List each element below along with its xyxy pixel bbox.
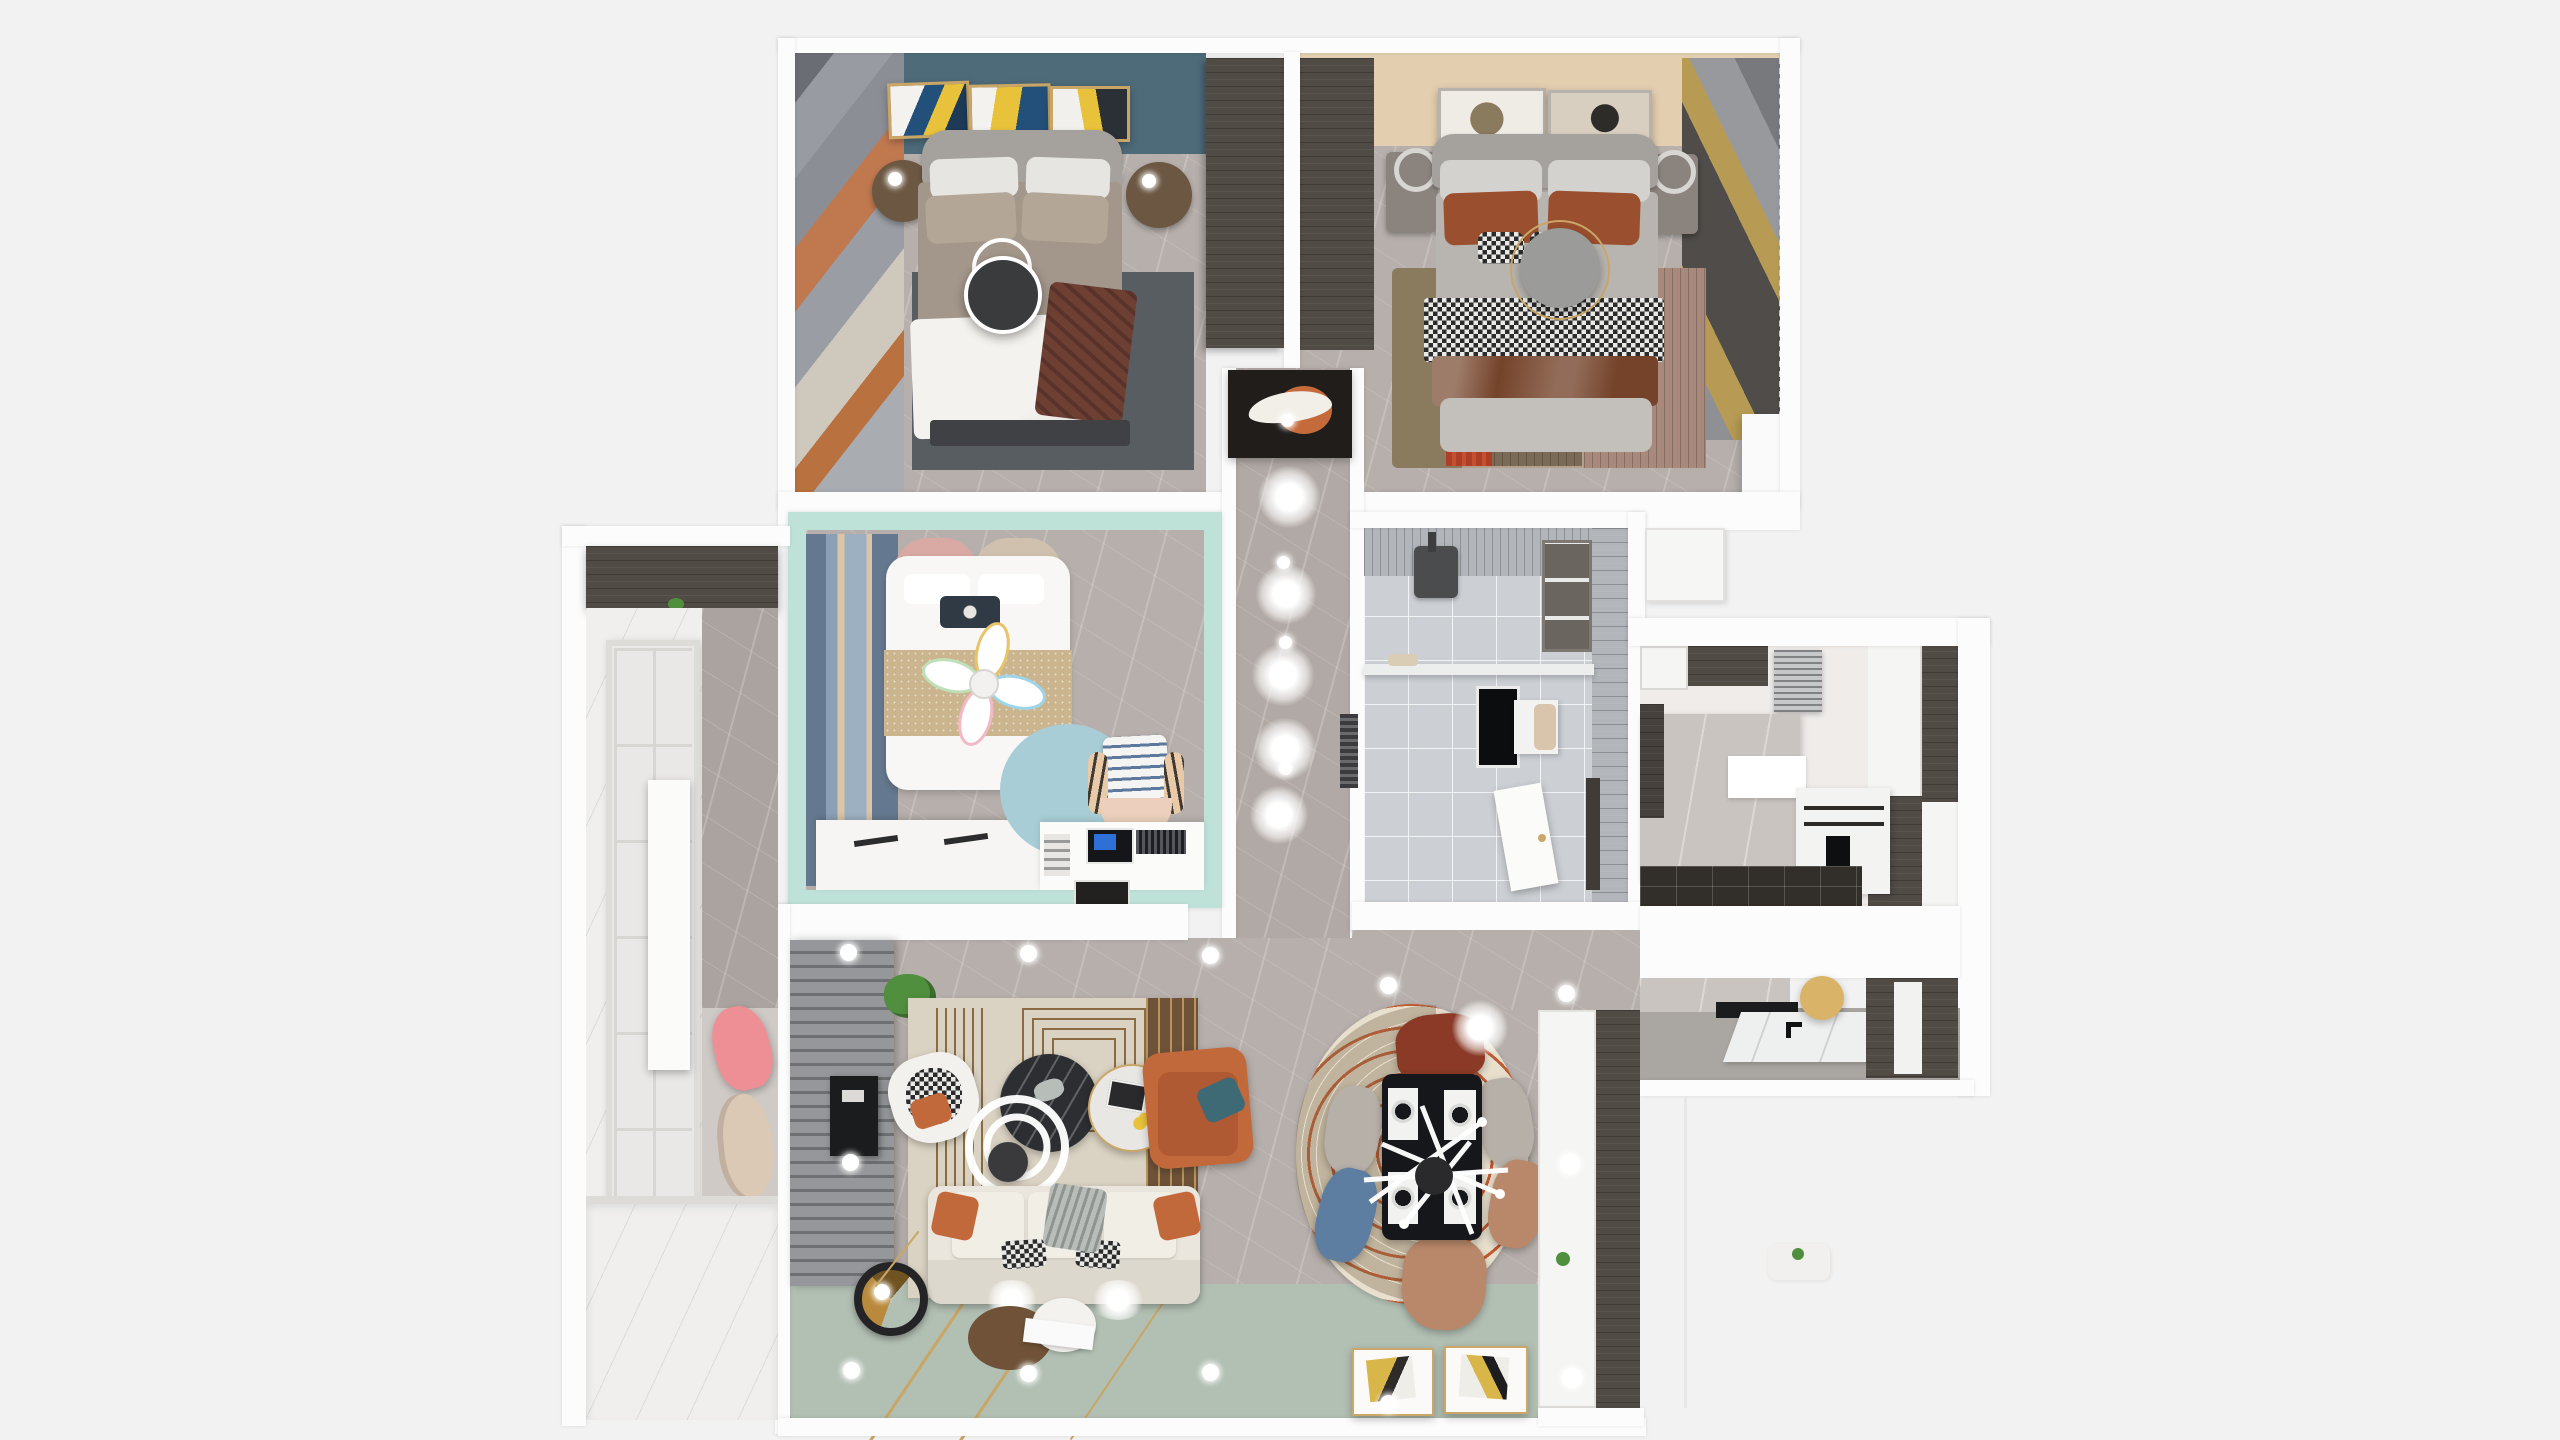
ceiling-downlight bbox=[1558, 985, 1575, 1002]
wall bbox=[1640, 1080, 1974, 1096]
table-lamp bbox=[1142, 174, 1156, 188]
wall bbox=[1222, 368, 1236, 992]
wall bbox=[1538, 1408, 1644, 1426]
toiletry-items bbox=[1388, 654, 1418, 666]
sputnik-chandelier bbox=[1352, 1084, 1522, 1254]
cabinet-downlight bbox=[1560, 1154, 1580, 1174]
kitchen-upper-white-cabinet bbox=[1640, 646, 1688, 690]
balcony-cabinet bbox=[586, 546, 778, 608]
wood-ball-pendant bbox=[1800, 976, 1844, 1020]
kids-platform bbox=[816, 820, 1040, 890]
balcony-marble-bench bbox=[586, 1200, 778, 1420]
vanity-basin bbox=[1534, 704, 1556, 750]
ceiling-downlight bbox=[1279, 762, 1292, 775]
downlight-glow bbox=[1258, 466, 1320, 528]
wall bbox=[562, 526, 790, 546]
wall bbox=[1352, 902, 1645, 932]
bathroom-door-frame bbox=[1586, 778, 1600, 890]
shower-head bbox=[1414, 546, 1458, 598]
range-hood bbox=[1774, 650, 1822, 712]
wall bbox=[778, 38, 795, 510]
hall-floor-by-bathroom bbox=[1352, 930, 1640, 1010]
ceiling-light bbox=[964, 256, 1042, 334]
ceiling-downlight bbox=[843, 1362, 860, 1379]
sofa-throw-gray bbox=[1042, 1182, 1108, 1253]
kitchen-dark-floor bbox=[1640, 866, 1862, 906]
dining-cabinet-side-panel bbox=[1596, 1010, 1640, 1408]
wall bbox=[1350, 512, 1646, 528]
ceiling-downlight bbox=[1279, 636, 1292, 649]
console-decor bbox=[842, 1090, 864, 1102]
bed-throw-blanket bbox=[1034, 281, 1138, 425]
hall-closet-niche bbox=[1645, 528, 1725, 602]
kitchen-tall-dark-panel bbox=[1922, 644, 1960, 802]
sofa-pillow-orange bbox=[930, 1190, 980, 1242]
wall-vent-grille bbox=[1340, 714, 1358, 788]
wall bbox=[1284, 52, 1300, 370]
wall bbox=[778, 1418, 1646, 1436]
door-handle bbox=[1538, 834, 1546, 842]
entry-faint-wall bbox=[1684, 1096, 1687, 1408]
wall bbox=[1958, 618, 1990, 1096]
downlight-glow bbox=[1256, 564, 1316, 624]
cabinet-plant bbox=[1556, 1252, 1570, 1266]
ceiling-downlight bbox=[1020, 1365, 1037, 1382]
oven-handle bbox=[1804, 822, 1884, 826]
wall bbox=[1628, 618, 1990, 646]
desk-books bbox=[1044, 834, 1070, 876]
ceiling-downlight bbox=[1277, 556, 1290, 569]
desk-keyboard bbox=[1136, 830, 1186, 854]
wardrobe-master bbox=[1206, 58, 1284, 348]
spiral-light-shade bbox=[988, 1142, 1028, 1182]
ceiling-downlight bbox=[1202, 947, 1219, 964]
sofa-underlight bbox=[1090, 1280, 1146, 1320]
floor-lamp-ring bbox=[854, 1262, 928, 1336]
kitchen-sink-counter bbox=[1723, 1012, 1889, 1062]
bed-pillow bbox=[925, 192, 1017, 245]
kitchen-lower-white-panel bbox=[1894, 982, 1922, 1074]
cabinet-downlight bbox=[1562, 1368, 1582, 1388]
desk-monitor-screen bbox=[1094, 834, 1116, 850]
kitchen-upper-dark-cabinet bbox=[1688, 646, 1768, 686]
ceiling-downlight bbox=[1202, 1364, 1219, 1381]
wall bbox=[1350, 368, 1364, 930]
pinwheel-ceiling-fan bbox=[922, 622, 1046, 746]
wall bbox=[1780, 38, 1800, 510]
roller-blind-panel bbox=[648, 780, 690, 1070]
ring-lamp bbox=[1652, 150, 1696, 194]
bed-pillow bbox=[1021, 192, 1109, 244]
second-bed-foot bbox=[1440, 398, 1652, 452]
nightstand bbox=[1126, 162, 1192, 228]
tv-console bbox=[830, 1076, 878, 1156]
shower-arm bbox=[1428, 532, 1436, 552]
kitchen-tall-white-cabinet bbox=[1868, 644, 1922, 796]
sink-faucet bbox=[1786, 1022, 1791, 1038]
balcony-inner-wall bbox=[702, 608, 778, 1008]
floorplan-render bbox=[0, 0, 2560, 1440]
kitchen-left-base-cabinet bbox=[1640, 704, 1664, 818]
bath-niche-shelf bbox=[1542, 540, 1592, 652]
kitchen-low-white-col bbox=[1922, 802, 1960, 906]
balcony-bench-edge bbox=[586, 1196, 778, 1204]
ceiling-downlight bbox=[1281, 414, 1294, 427]
oven-handle bbox=[1804, 806, 1884, 810]
floor-art-abstract bbox=[1459, 1354, 1510, 1399]
kids-chair-back bbox=[1102, 734, 1169, 803]
counter-white-sheet bbox=[1728, 756, 1806, 798]
ceiling-downlight bbox=[1380, 1395, 1397, 1412]
wall bbox=[778, 38, 1800, 53]
ceiling-downlight bbox=[1380, 977, 1397, 994]
dining-cabinet-doors bbox=[1538, 1010, 1596, 1408]
sofa-pillow-mono bbox=[1001, 1238, 1047, 1269]
ceiling-downlight bbox=[840, 944, 857, 961]
ceiling-downlight bbox=[842, 1154, 859, 1171]
bed-end-bench bbox=[930, 420, 1130, 446]
sofa-pillow-orange bbox=[1152, 1190, 1202, 1242]
ceiling-downlight bbox=[1020, 945, 1037, 962]
table-lamp bbox=[888, 172, 902, 186]
wardrobe-second-front bbox=[1300, 58, 1374, 350]
wall bbox=[562, 526, 586, 1426]
ceiling-light bbox=[1520, 228, 1600, 308]
downlight-glow bbox=[1252, 644, 1314, 706]
downlight-glow bbox=[1452, 1000, 1508, 1056]
wall bbox=[778, 904, 1188, 940]
entry-plant bbox=[1792, 1248, 1804, 1260]
downlight-glow bbox=[1250, 786, 1308, 844]
wall bbox=[1640, 906, 1960, 978]
